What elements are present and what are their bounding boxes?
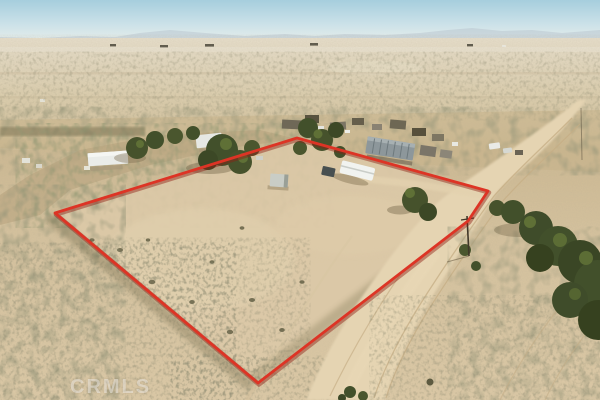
- aerial-photo: CRMLS: [0, 0, 600, 400]
- scene-canvas: [0, 0, 600, 400]
- watermark: CRMLS: [70, 376, 151, 399]
- storage-shed: [267, 173, 289, 190]
